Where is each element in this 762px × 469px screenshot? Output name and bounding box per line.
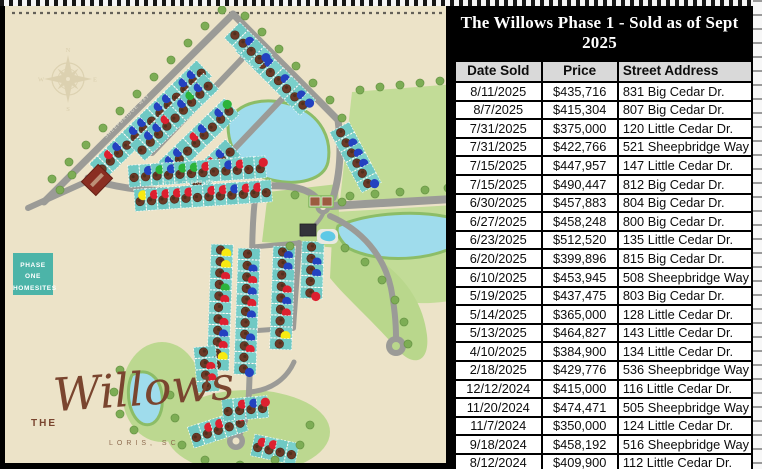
- date-cell: 6/27/2025: [455, 212, 542, 231]
- tree-icon: [338, 114, 346, 122]
- address-cell: 815 Big Cedar Dr.: [618, 249, 752, 268]
- header-street-address: Street Address: [618, 61, 752, 82]
- tree-icon: [306, 421, 314, 429]
- price-cell: $375,000: [542, 119, 618, 138]
- price-cell: $399,896: [542, 249, 618, 268]
- table-row: 7/31/2025$422,766521 Sheepbridge Way: [455, 138, 752, 157]
- address-cell: 135 Little Cedar Dr.: [618, 231, 752, 250]
- date-cell: 6/23/2025: [455, 231, 542, 250]
- compass-w: W: [38, 77, 45, 84]
- tree-icon: [275, 45, 283, 53]
- address-cell: 134 Little Cedar Dr.: [618, 342, 752, 361]
- amenity-building: [300, 224, 316, 236]
- tree-icon: [56, 186, 64, 194]
- tree-icon: [184, 39, 192, 47]
- price-cell: $415,304: [542, 101, 618, 120]
- date-cell: 2/18/2025: [455, 361, 542, 380]
- tree-icon: [167, 56, 175, 64]
- address-cell: 807 Big Cedar Dr.: [618, 101, 752, 120]
- address-cell: 831 Big Cedar Dr.: [618, 82, 752, 101]
- tree-icon: [258, 28, 266, 36]
- price-cell: $365,000: [542, 305, 618, 324]
- willows-logo: THE Willows LORIS, SC: [23, 368, 243, 463]
- price-cell: $474,471: [542, 398, 618, 417]
- tree-icon: [396, 188, 404, 196]
- price-cell: $409,900: [542, 454, 618, 469]
- east-pond: [337, 213, 446, 258]
- tree-icon: [292, 62, 300, 70]
- table-row: 12/12/2024$415,000116 Little Cedar Dr.: [455, 380, 752, 399]
- tree-icon: [378, 276, 386, 284]
- price-cell: $512,520: [542, 231, 618, 250]
- scan-edge-right: [753, 0, 762, 469]
- tree-icon: [150, 73, 158, 81]
- address-cell: 812 Big Cedar Dr.: [618, 175, 752, 194]
- table-row: 7/31/2025$375,000120 Little Cedar Dr.: [455, 119, 752, 138]
- date-cell: 6/20/2025: [455, 249, 542, 268]
- tree-icon: [201, 22, 209, 30]
- address-cell: 116 Little Cedar Dr.: [618, 380, 752, 399]
- table-row: 6/23/2025$512,520135 Little Cedar Dr.: [455, 231, 752, 250]
- table-row: 7/15/2025$447,957147 Little Cedar Dr.: [455, 156, 752, 175]
- table-row: 4/10/2025$384,900134 Little Cedar Dr.: [455, 342, 752, 361]
- compass-n: N: [66, 47, 71, 54]
- sold-table: Date Sold Price Street Address 8/11/2025…: [454, 60, 753, 469]
- price-cell: $429,776: [542, 361, 618, 380]
- address-cell: 120 Little Cedar Dr.: [618, 119, 752, 138]
- tree-icon: [436, 77, 444, 85]
- phase-one-label: PHASE ONE HOMESITES: [13, 253, 53, 295]
- date-cell: 8/12/2024: [455, 454, 542, 469]
- table-row: 11/20/2024$474,471505 Sheepbridge Way: [455, 398, 752, 417]
- table-row: 8/7/2025$415,304807 Big Cedar Dr.: [455, 101, 752, 120]
- table-row: 6/27/2025$458,248800 Big Cedar Dr.: [455, 212, 752, 231]
- date-cell: 4/10/2025: [455, 342, 542, 361]
- price-cell: $447,957: [542, 156, 618, 175]
- tree-icon: [376, 83, 384, 91]
- header-date-sold: Date Sold: [455, 61, 542, 82]
- address-cell: 803 Big Cedar Dr.: [618, 287, 752, 306]
- table-body: 8/11/2025$435,716831 Big Cedar Dr.8/7/20…: [455, 82, 752, 469]
- tree-icon: [326, 96, 334, 104]
- tree-icon: [309, 79, 317, 87]
- price-cell: $458,248: [542, 212, 618, 231]
- court-icon: [310, 197, 320, 206]
- address-cell: 804 Big Cedar Dr.: [618, 194, 752, 213]
- tree-icon: [346, 192, 354, 200]
- price-cell: $384,900: [542, 342, 618, 361]
- logo-name: Willows: [51, 356, 236, 423]
- date-cell: 12/12/2024: [455, 380, 542, 399]
- tree-icon: [48, 175, 56, 183]
- tree-icon: [338, 198, 346, 206]
- date-cell: 6/30/2025: [455, 194, 542, 213]
- compass-s: S: [66, 106, 70, 113]
- tree-icon: [391, 296, 399, 304]
- tree-icon: [286, 242, 294, 250]
- table-row: 11/7/2024$350,000124 Little Cedar Dr.: [455, 417, 752, 436]
- date-cell: 7/15/2025: [455, 175, 542, 194]
- tree-icon: [99, 124, 107, 132]
- tree-icon: [371, 190, 379, 198]
- price-cell: $422,766: [542, 138, 618, 157]
- tree-icon: [396, 81, 404, 89]
- header-row: Date Sold Price Street Address: [455, 61, 752, 82]
- tree-icon: [116, 107, 124, 115]
- table-row: 6/20/2025$399,896815 Big Cedar Dr.: [455, 249, 752, 268]
- price-cell: $453,945: [542, 268, 618, 287]
- tree-icon: [241, 12, 249, 20]
- address-cell: 147 Little Cedar Dr.: [618, 156, 752, 175]
- date-cell: 5/13/2025: [455, 324, 542, 343]
- tree-icon: [82, 141, 90, 149]
- tree-icon: [296, 441, 304, 449]
- date-cell: 5/19/2025: [455, 287, 542, 306]
- price-cell: $457,883: [542, 194, 618, 213]
- price-cell: $435,716: [542, 82, 618, 101]
- court-icon: [322, 197, 332, 206]
- address-cell: 536 Sheepbridge Way: [618, 361, 752, 380]
- address-cell: 124 Little Cedar Dr.: [618, 417, 752, 436]
- address-cell: 128 Little Cedar Dr.: [618, 305, 752, 324]
- address-cell: 112 Little Cedar Dr.: [618, 454, 752, 469]
- flyer: N E S W: [0, 0, 762, 469]
- date-cell: 7/31/2025: [455, 138, 542, 157]
- tree-icon: [356, 86, 364, 94]
- tree-icon: [291, 191, 299, 199]
- lot-strip: [300, 241, 324, 301]
- price-cell: $437,475: [542, 287, 618, 306]
- tree-icon: [400, 318, 408, 326]
- price-cell: $415,000: [542, 380, 618, 399]
- tree-icon: [133, 90, 141, 98]
- date-cell: 8/11/2025: [455, 82, 542, 101]
- table-row: 5/14/2025$365,000128 Little Cedar Dr.: [455, 305, 752, 324]
- lot-strip: [270, 246, 296, 350]
- tree-icon: [218, 6, 226, 14]
- date-cell: 7/15/2025: [455, 156, 542, 175]
- table-row: 8/12/2024$409,900112 Little Cedar Dr.: [455, 454, 752, 469]
- table-row: 6/30/2025$457,883804 Big Cedar Dr.: [455, 194, 752, 213]
- table-row: 8/11/2025$435,716831 Big Cedar Dr.: [455, 82, 752, 101]
- date-cell: 5/14/2025: [455, 305, 542, 324]
- price-cell: $490,447: [542, 175, 618, 194]
- table-title: The Willows Phase 1 - Sold as of Sept 20…: [446, 6, 753, 53]
- logo-prefix: THE: [31, 418, 57, 429]
- lot-strip: [234, 248, 260, 377]
- address-cell: 143 Little Cedar Dr.: [618, 324, 752, 343]
- tree-icon: [421, 186, 429, 194]
- date-cell: 9/18/2024: [455, 435, 542, 454]
- tree-icon: [404, 340, 412, 348]
- tree-icon: [65, 158, 73, 166]
- date-cell: 8/7/2025: [455, 101, 542, 120]
- table-row: 6/10/2025$453,945508 Sheepbridge Way: [455, 268, 752, 287]
- price-cell: $464,827: [542, 324, 618, 343]
- tree-icon: [271, 456, 279, 463]
- price-cell: $350,000: [542, 417, 618, 436]
- date-cell: 11/20/2024: [455, 398, 542, 417]
- table-row: 5/13/2025$464,827143 Little Cedar Dr.: [455, 324, 752, 343]
- address-cell: 505 Sheepbridge Way: [618, 398, 752, 417]
- compass-e: E: [93, 77, 97, 84]
- address-cell: 516 Sheepbridge Way: [618, 435, 752, 454]
- address-cell: 508 Sheepbridge Way: [618, 268, 752, 287]
- table-row: 9/18/2024$458,192516 Sheepbridge Way: [455, 435, 752, 454]
- tree-icon: [68, 171, 76, 179]
- sold-table-panel: The Willows Phase 1 - Sold as of Sept 20…: [446, 6, 753, 463]
- date-cell: 11/7/2024: [455, 417, 542, 436]
- table-row: 5/19/2025$437,475803 Big Cedar Dr.: [455, 287, 752, 306]
- table-row: 7/15/2025$490,447812 Big Cedar Dr.: [455, 175, 752, 194]
- site-map-panel: N E S W: [5, 6, 446, 463]
- address-cell: 521 Sheepbridge Way: [618, 138, 752, 157]
- header-price: Price: [542, 61, 618, 82]
- logo-location: LORIS, SC: [109, 440, 180, 447]
- tree-icon: [341, 244, 349, 252]
- price-cell: $458,192: [542, 435, 618, 454]
- table-row: 2/18/2025$429,776536 Sheepbridge Way: [455, 361, 752, 380]
- tree-icon: [416, 79, 424, 87]
- tree-icon: [361, 258, 369, 266]
- address-cell: 800 Big Cedar Dr.: [618, 212, 752, 231]
- date-cell: 7/31/2025: [455, 119, 542, 138]
- date-cell: 6/10/2025: [455, 268, 542, 287]
